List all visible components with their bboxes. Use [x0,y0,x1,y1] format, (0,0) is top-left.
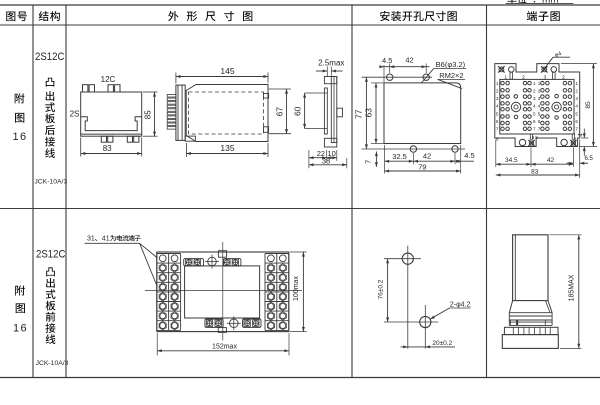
svg-text:7: 7 [575,127,578,132]
svg-text:6.5: 6.5 [585,156,594,162]
svg-text:4: 4 [496,104,499,109]
svg-text:7: 7 [538,127,541,132]
svg-text:6: 6 [575,119,578,124]
svg-text:JCK-10A/3: JCK-10A/3 [36,360,69,367]
svg-text:83: 83 [103,144,112,153]
svg-text:3: 3 [496,96,499,101]
svg-text:3: 3 [538,96,541,101]
svg-text:2S: 2S [70,110,80,119]
svg-text:83: 83 [531,168,539,175]
svg-text:4.5: 4.5 [382,56,392,65]
svg-text:42: 42 [547,157,555,164]
svg-text:4: 4 [538,104,541,109]
svg-text:42: 42 [405,56,413,65]
svg-text:2S12C: 2S12C [36,249,66,261]
svg-text:1: 1 [533,81,536,86]
svg-text:5: 5 [496,111,499,116]
svg-text:85: 85 [585,101,592,109]
svg-text:100max: 100max [293,276,300,301]
svg-text:B6(φ3.2): B6(φ3.2) [436,60,466,69]
svg-text:76±0.2: 76±0.2 [377,279,384,299]
svg-text:：mm: ：mm [532,0,559,6]
svg-text:2.5max: 2.5max [318,58,344,67]
svg-text:2-φ4.2: 2-φ4.2 [450,302,471,309]
svg-text:4: 4 [533,104,536,109]
svg-text:32.5: 32.5 [392,152,407,161]
svg-text:1: 1 [575,81,578,86]
svg-text:42: 42 [423,151,431,160]
svg-text:20±0.2: 20±0.2 [432,340,452,347]
svg-text:2S12C: 2S12C [35,51,65,63]
svg-text:2: 2 [496,89,499,94]
svg-text:31: 31 [87,236,95,243]
svg-text:38: 38 [322,157,330,166]
svg-text:152max: 152max [212,344,237,351]
svg-text:63: 63 [364,108,374,118]
svg-text:4: 4 [575,104,578,109]
svg-text:2: 2 [575,89,578,94]
svg-text:2: 2 [538,89,541,94]
svg-text:1: 1 [496,81,499,86]
svg-text:67: 67 [275,107,285,117]
svg-text:41: 41 [102,236,110,243]
svg-text:145: 145 [220,66,234,76]
svg-text:7: 7 [364,160,373,164]
svg-text:6: 6 [496,119,499,124]
svg-text:135: 135 [220,143,234,153]
svg-text:6: 6 [533,119,536,124]
svg-text:JCK-10A/3: JCK-10A/3 [34,178,67,185]
svg-text:1: 1 [538,81,541,86]
svg-text:7: 7 [496,127,499,132]
svg-text:5: 5 [538,111,541,116]
svg-text:79: 79 [418,163,426,172]
svg-text:5: 5 [575,111,578,116]
svg-text:16: 16 [13,323,28,335]
svg-text:7: 7 [533,127,536,132]
svg-text:5: 5 [533,111,536,116]
svg-text:16: 16 [12,131,27,143]
svg-text:12C: 12C [101,75,116,84]
svg-text:4.5: 4.5 [464,151,474,160]
svg-text:60: 60 [292,106,302,116]
svg-text:77: 77 [353,109,363,119]
svg-text:2: 2 [533,89,536,94]
svg-text:3: 3 [533,96,536,101]
svg-text:34.5: 34.5 [505,157,518,164]
svg-text:3: 3 [575,96,578,101]
svg-text:185MAX: 185MAX [568,274,575,301]
svg-text:6: 6 [538,119,541,124]
svg-text:RM2×2: RM2×2 [439,71,463,80]
svg-text:85: 85 [144,110,153,119]
